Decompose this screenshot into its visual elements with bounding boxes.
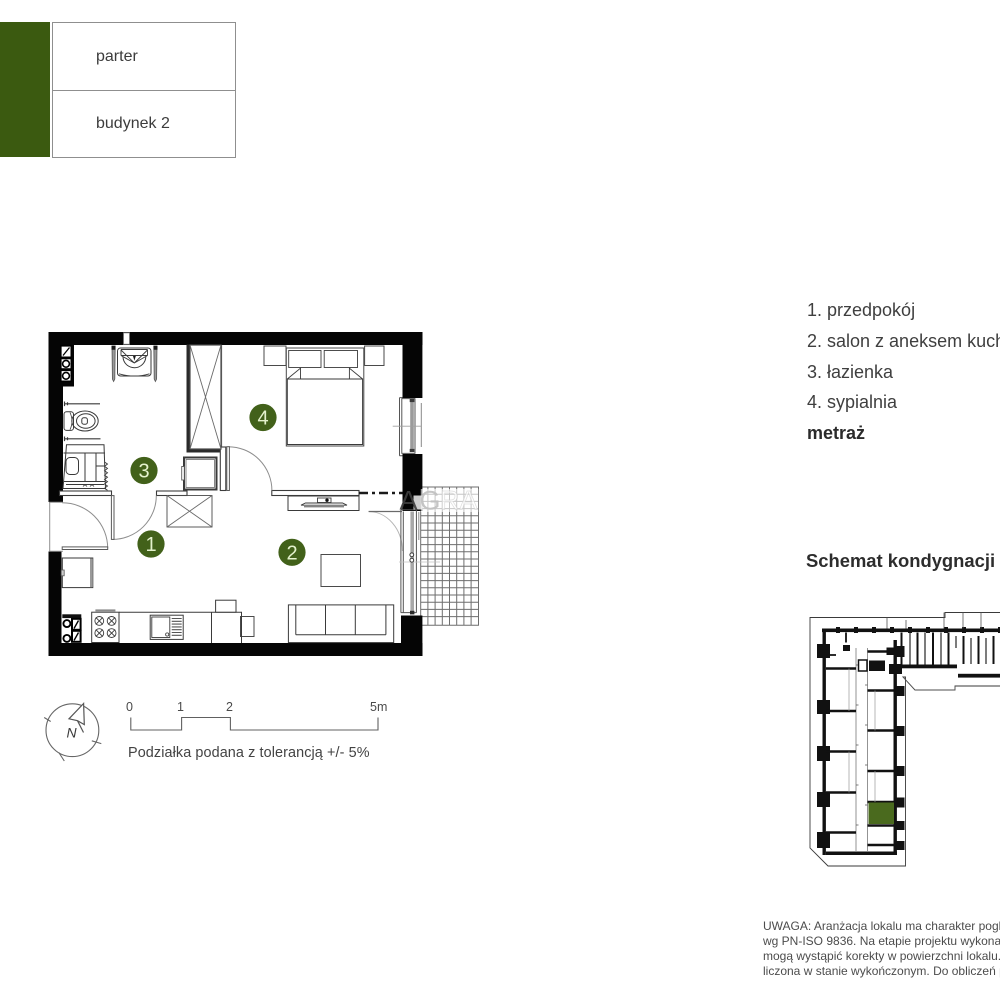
svg-text:3: 3	[138, 461, 149, 483]
svg-text:RA: RA	[440, 486, 478, 516]
svg-text:2: 2	[286, 542, 297, 564]
svg-text:1: 1	[145, 534, 156, 556]
svg-text:N: N	[67, 725, 78, 741]
svg-text:A: A	[400, 486, 418, 516]
svg-text:4: 4	[257, 408, 268, 430]
svg-text:G: G	[420, 486, 441, 516]
